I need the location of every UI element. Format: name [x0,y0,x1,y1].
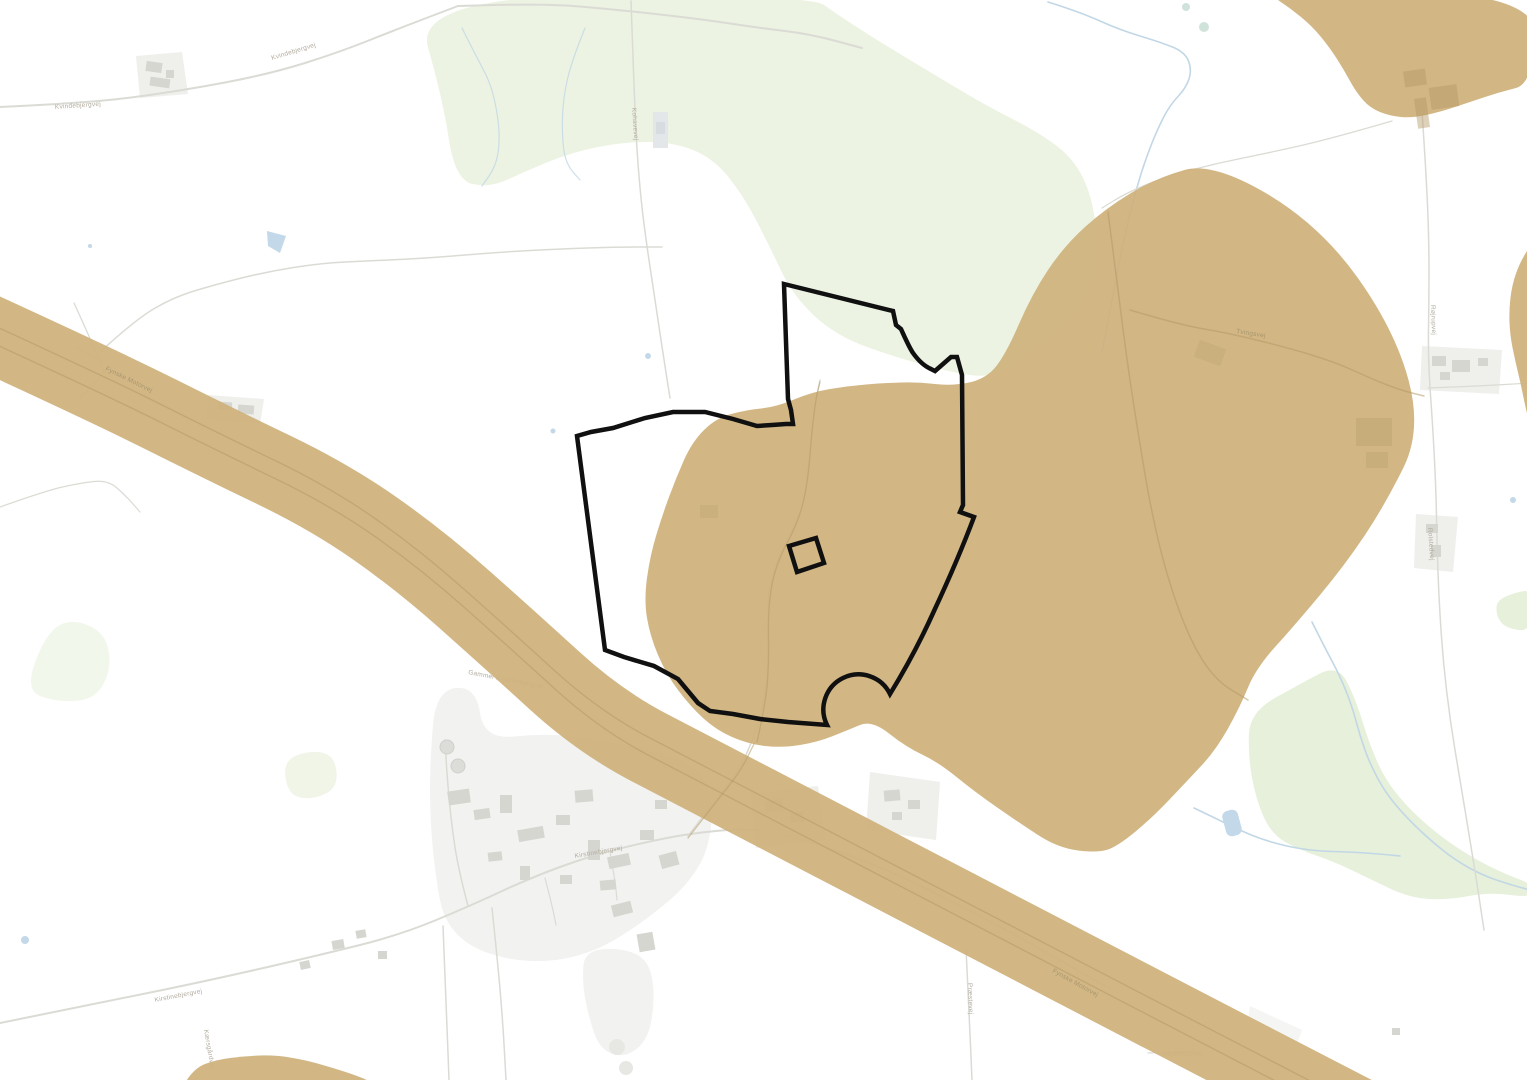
zone-sliver-right [1509,250,1527,427]
building [655,800,667,809]
building [1432,356,1446,366]
building [166,70,174,78]
map-canvas[interactable]: Kvindebjergvej Kvindebjergvej Kohavevej … [0,0,1527,1080]
forest-area [427,0,1096,376]
road [0,481,140,512]
pond [21,936,29,944]
building [520,866,530,880]
building [500,795,512,813]
pond [645,353,651,359]
building [908,800,920,809]
building [1440,372,1450,380]
road [443,926,449,1080]
pond [88,244,92,248]
pond [1199,22,1209,32]
pond [551,429,556,434]
building [488,851,503,861]
building [560,875,572,884]
building-under-zone [700,505,718,518]
building [656,122,665,134]
building [1392,1028,1400,1035]
building [556,815,570,825]
tank-building [451,759,465,773]
green-field [285,752,337,798]
building-under-zone [1356,418,1392,446]
tank-building [619,1061,633,1075]
building [299,960,310,970]
green-field [1496,591,1527,630]
building [884,789,901,801]
pond [1182,3,1190,11]
green-field [31,622,110,701]
building [892,812,902,820]
building [1452,360,1470,372]
building-under-zone [1366,452,1388,468]
zone-blob-top-right [1277,0,1527,117]
tank-building [440,740,454,754]
building [575,789,594,803]
building-under-zone [1429,84,1460,110]
road [100,247,662,352]
green-field [1249,670,1527,899]
building [640,830,654,840]
street-label: Præstevej [966,983,974,1015]
street-label: Kvindebjergvej [55,101,102,111]
pond [1221,808,1243,837]
pond [267,231,286,253]
tank-building [609,1039,625,1055]
building [637,932,656,953]
building [600,879,617,890]
building [378,951,387,959]
building-under-zone [1403,69,1427,88]
building [355,929,366,939]
street-label: Kvindebjergvej [271,42,317,62]
street-label: Røjrupvej [1429,305,1437,335]
building [1478,358,1488,366]
road [0,6,458,107]
pond [1510,497,1516,503]
